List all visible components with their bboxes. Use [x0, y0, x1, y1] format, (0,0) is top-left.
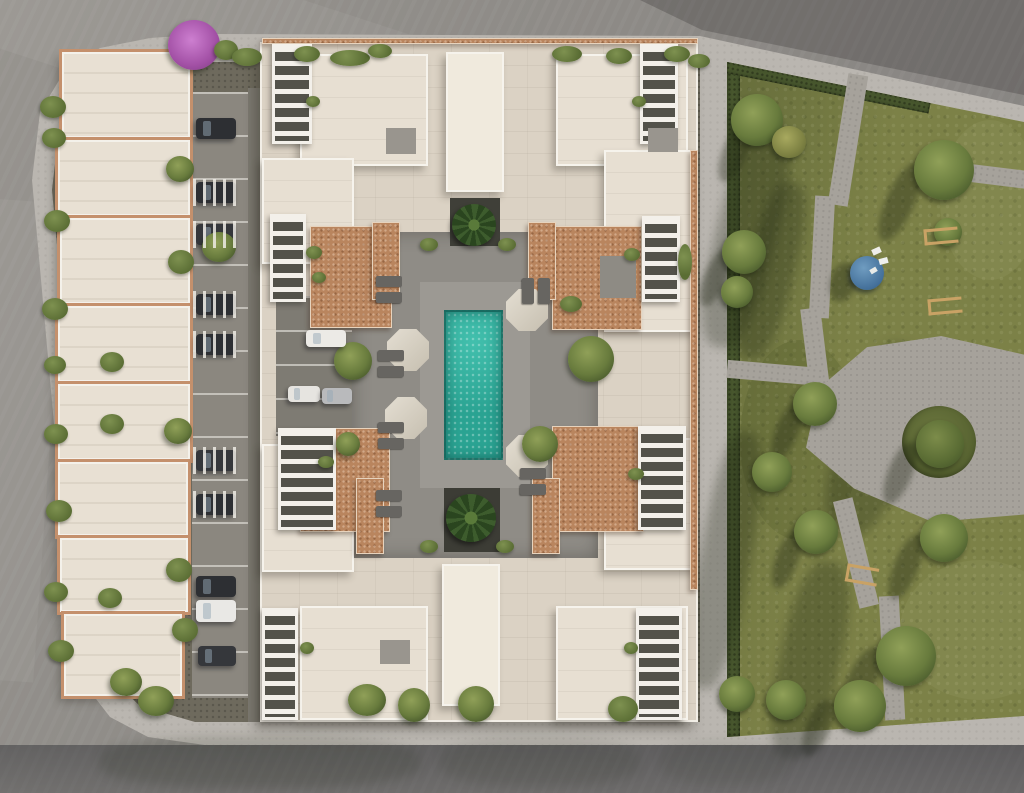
- aerial-render-scene: Aerial 3D render - residential complex w…: [0, 0, 1024, 793]
- carport-parking-lane: [192, 92, 248, 698]
- courtyard-paving: [352, 232, 598, 558]
- park-hedge-west: [727, 62, 740, 737]
- road-shadow-bottom: [0, 745, 1024, 793]
- neighborhood-park-lawn: [700, 40, 1024, 740]
- interior-parking-pocket: [276, 296, 354, 436]
